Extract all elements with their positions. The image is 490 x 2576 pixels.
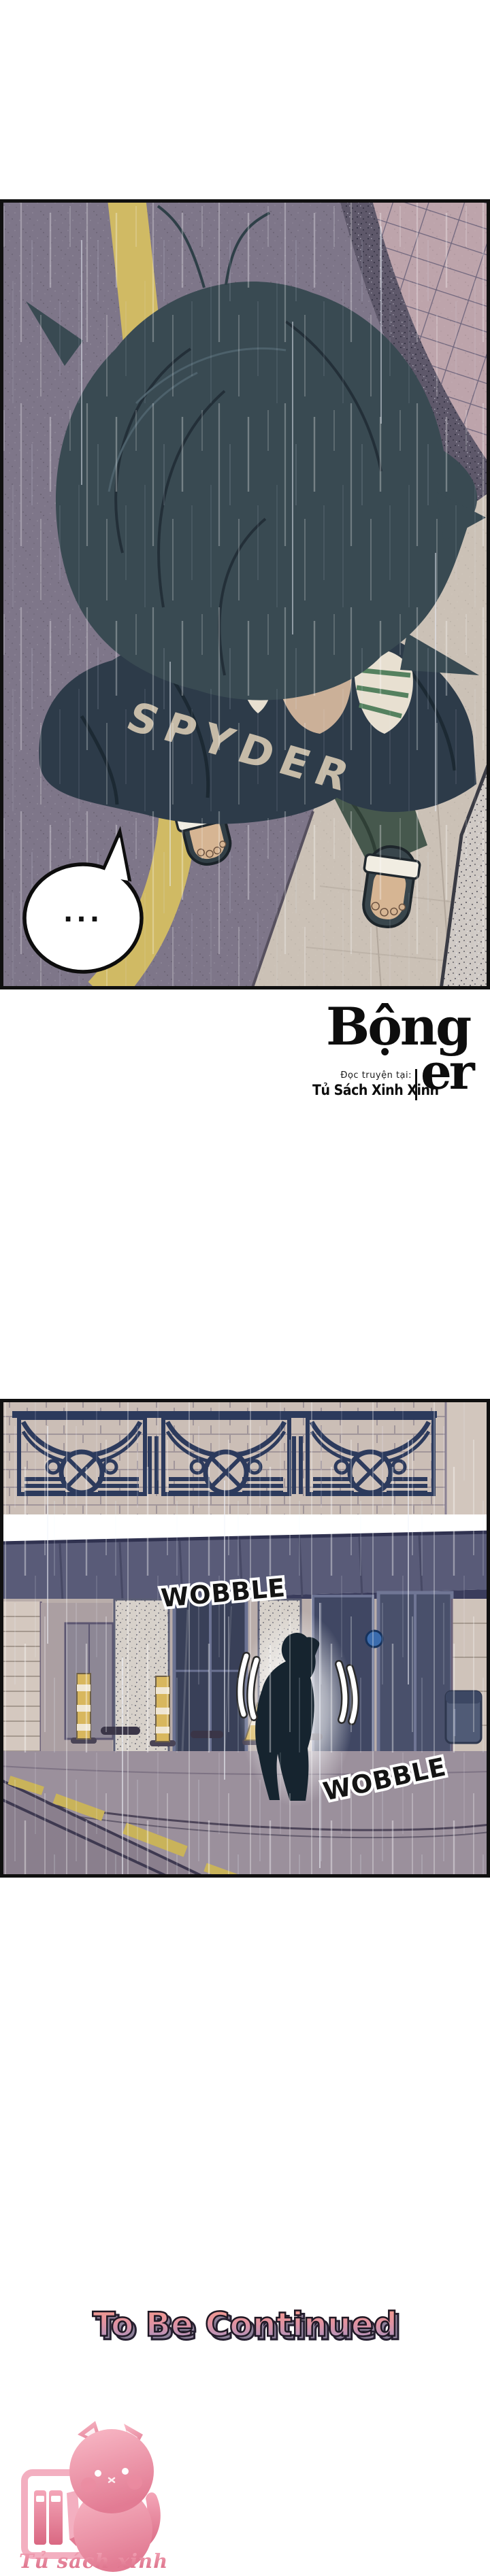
- panel-building-scene: WOBBLE WOBBLE: [0, 1399, 490, 1878]
- cat-blush-left: [81, 2477, 96, 2492]
- to-be-continued-text: To Be Continued: [0, 2305, 490, 2344]
- cat-blush-right: [127, 2475, 142, 2490]
- cat-eye-left: [95, 2470, 101, 2477]
- cat-eye-right: [122, 2468, 129, 2475]
- logo-tagline: Đọc truyện tại:: [310, 1070, 412, 1081]
- to-be-continued-banner: To Be Continued To Be Continued: [0, 2305, 490, 2353]
- publisher-logo-block: Bộng er Đọc truyện tại: Tủ Sách Xinh Xin…: [310, 1005, 487, 1107]
- speech-bubble-text: ...: [63, 898, 103, 928]
- cat-head: [69, 2429, 154, 2513]
- mascot-caption: Tủ sách xinh xinh: [19, 2549, 170, 2573]
- publisher-mascot: Tủ sách xinh xinh: [18, 2420, 170, 2576]
- webtoon-page: { "page": { "width": 720, "height": 3788…: [0, 0, 490, 2576]
- rain-overlay: [0, 1399, 490, 1878]
- panel-street-scene: SPYDER ...: [0, 199, 490, 989]
- logo-site-name: Tủ Sách Xinh Xinh: [312, 1082, 414, 1099]
